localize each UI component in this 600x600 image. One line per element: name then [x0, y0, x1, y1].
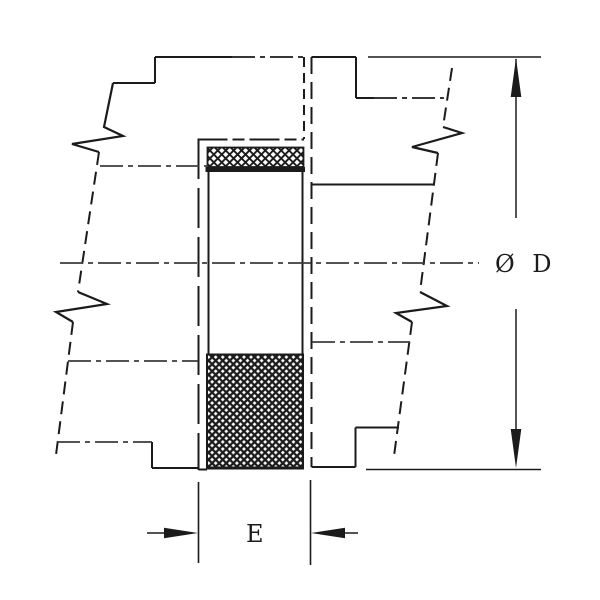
right-break-zigzag-lower — [396, 292, 447, 322]
dimension-width-e: E — [147, 480, 358, 565]
arrow-right-icon — [164, 528, 198, 539]
right-break-dashed-top — [443, 68, 452, 127]
dim-label-diameter: Ø D — [495, 250, 557, 278]
ink-layer: Ø D E — [56, 57, 557, 565]
arrow-down-icon — [511, 429, 522, 468]
packing-ring-lower-hatch — [207, 355, 303, 468]
right-break-dashed-middle — [420, 153, 438, 292]
left-break-dashed-lower — [56, 322, 73, 455]
drawing-canvas: Ø D E — [0, 0, 600, 600]
dim-label-width: E — [246, 520, 269, 548]
left-break-zigzag-lower — [56, 292, 107, 322]
left-break-zigzag-upper — [72, 83, 123, 152]
right-pipe — [312, 57, 463, 467]
left-break-dashed-upper — [78, 152, 99, 292]
arrow-up-icon — [511, 58, 522, 97]
right-break-zigzag-upper — [412, 127, 462, 153]
technical-section-drawing: Ø D E — [0, 0, 600, 600]
arrow-left-icon — [311, 528, 345, 539]
packing-ring-upper-hatch — [208, 148, 304, 168]
